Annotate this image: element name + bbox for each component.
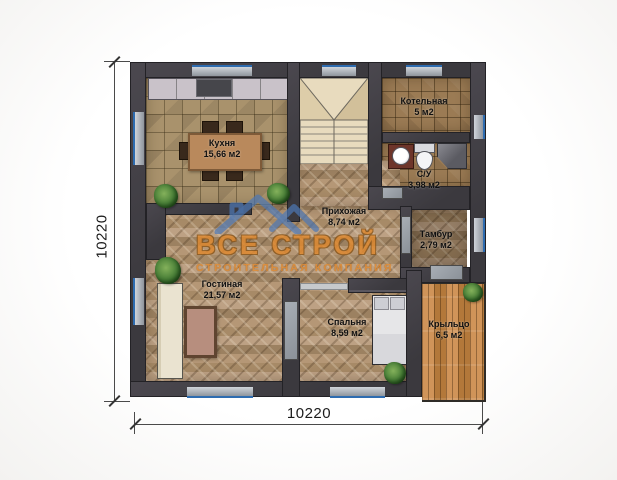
wall-left-stub (146, 203, 166, 260)
room-area: 6,5 м2 (411, 330, 487, 341)
room-name: Кухня (184, 138, 260, 149)
window (187, 387, 253, 398)
room-label-boiler: Котельная 5 м2 (386, 96, 462, 119)
room-area: 8,74 м2 (306, 217, 382, 228)
room-label-kitchen: Кухня 15,66 м2 (184, 138, 260, 161)
stove (196, 79, 232, 97)
room-area: 8,59 м2 (309, 328, 385, 339)
extension-line (104, 61, 130, 62)
room-area: 5 м2 (386, 107, 462, 118)
plant-symbol (384, 362, 406, 384)
dimension-line-bottom (135, 424, 483, 425)
floor-plan-canvas: Кухня 15,66 м2 Котельная 5 м2 С/У 3,98 м… (0, 0, 617, 480)
room-area: 21,57 м2 (184, 290, 260, 301)
room-area: 15,66 м2 (184, 149, 260, 160)
bedroom-doorway-threshold (301, 284, 347, 289)
entrance-door (431, 266, 462, 279)
wall-boiler-bathroom (382, 132, 470, 143)
bedroom-door (285, 302, 297, 359)
window (133, 112, 144, 165)
extension-line (104, 401, 130, 402)
room-name: Тамбур (398, 229, 474, 240)
plant-symbol (155, 257, 181, 284)
extension-line (482, 400, 483, 434)
window (192, 65, 252, 76)
pillow (374, 297, 389, 310)
room-name: Спальня (309, 317, 385, 328)
room-label-bathroom: С/У 3,98 м2 (386, 169, 462, 192)
plant-symbol (267, 183, 290, 204)
window (133, 278, 144, 325)
plant-symbol (154, 184, 178, 208)
pillow (390, 297, 405, 310)
wardrobe (157, 283, 183, 379)
room-name: Крыльцо (411, 319, 487, 330)
window (474, 218, 485, 252)
plant-symbol (463, 283, 483, 302)
dimension-value-left: 10220 (94, 207, 111, 267)
staircase (300, 78, 368, 164)
dimension-value-bottom: 10220 (279, 405, 339, 422)
bedroom-closet-block (348, 278, 407, 293)
room-label-vestibule: Тамбур 2,79 м2 (398, 229, 474, 252)
room-name: Котельная (386, 96, 462, 107)
dimension-line-left (114, 62, 115, 402)
room-label-living: Гостиная 21,57 м2 (184, 279, 260, 302)
window (474, 115, 485, 139)
window (322, 65, 356, 76)
room-area: 3,98 м2 (386, 180, 462, 191)
room-label-hallway: Прихожая 8,74 м2 (306, 206, 382, 229)
room-name: Гостиная (184, 279, 260, 290)
room-name: Прихожая (306, 206, 382, 217)
coffee-table (184, 306, 217, 358)
room-area: 2,79 м2 (398, 240, 474, 251)
room-label-porch: Крыльцо 6,5 м2 (411, 319, 487, 342)
room-name: С/У (386, 169, 462, 180)
window (406, 65, 442, 76)
room-label-bedroom: Спальня 8,59 м2 (309, 317, 385, 340)
window (330, 387, 385, 398)
sink (392, 147, 410, 165)
